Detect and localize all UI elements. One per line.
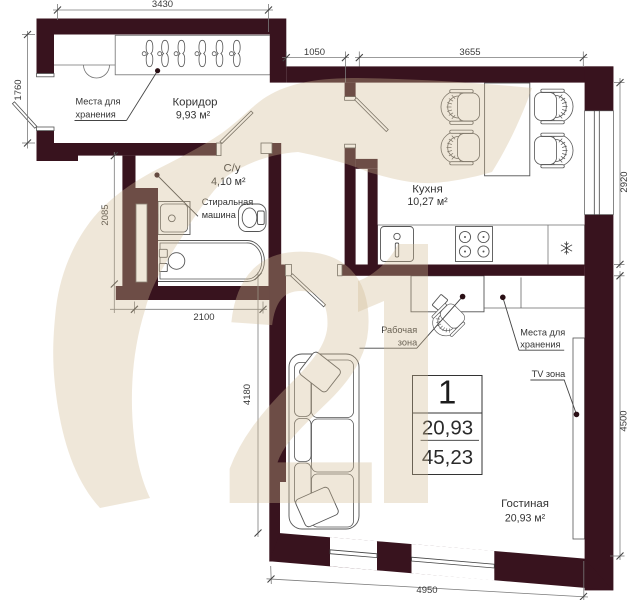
svg-text:4950: 4950 — [416, 585, 437, 596]
svg-text:TV зона: TV зона — [532, 369, 567, 379]
svg-text:Коридор: Коридор — [173, 97, 218, 109]
svg-text:4500: 4500 — [618, 410, 629, 431]
svg-text:Кухня: Кухня — [412, 184, 443, 196]
svg-text:9,93 м²: 9,93 м² — [176, 110, 211, 122]
svg-text:Гостиная: Гостиная — [501, 498, 549, 510]
svg-text:2: 2 — [219, 177, 383, 579]
svg-text:2920: 2920 — [619, 171, 630, 192]
svg-text:10,27 м²: 10,27 м² — [407, 196, 448, 208]
svg-text:20,93: 20,93 — [422, 417, 473, 440]
svg-text:3655: 3655 — [459, 47, 480, 58]
svg-text:Места для: Места для — [76, 97, 121, 107]
svg-text:45,23: 45,23 — [422, 446, 473, 469]
svg-text:хранения: хранения — [520, 340, 560, 350]
svg-text:3430: 3430 — [152, 0, 173, 10]
svg-text:Места для: Места для — [520, 328, 565, 338]
svg-text:хранения: хранения — [76, 110, 116, 120]
svg-text:1760: 1760 — [13, 79, 24, 100]
svg-text:1050: 1050 — [304, 47, 325, 58]
svg-text:1: 1 — [438, 374, 456, 411]
svg-text:2100: 2100 — [193, 312, 214, 323]
svg-text:20,93 м²: 20,93 м² — [505, 513, 546, 525]
